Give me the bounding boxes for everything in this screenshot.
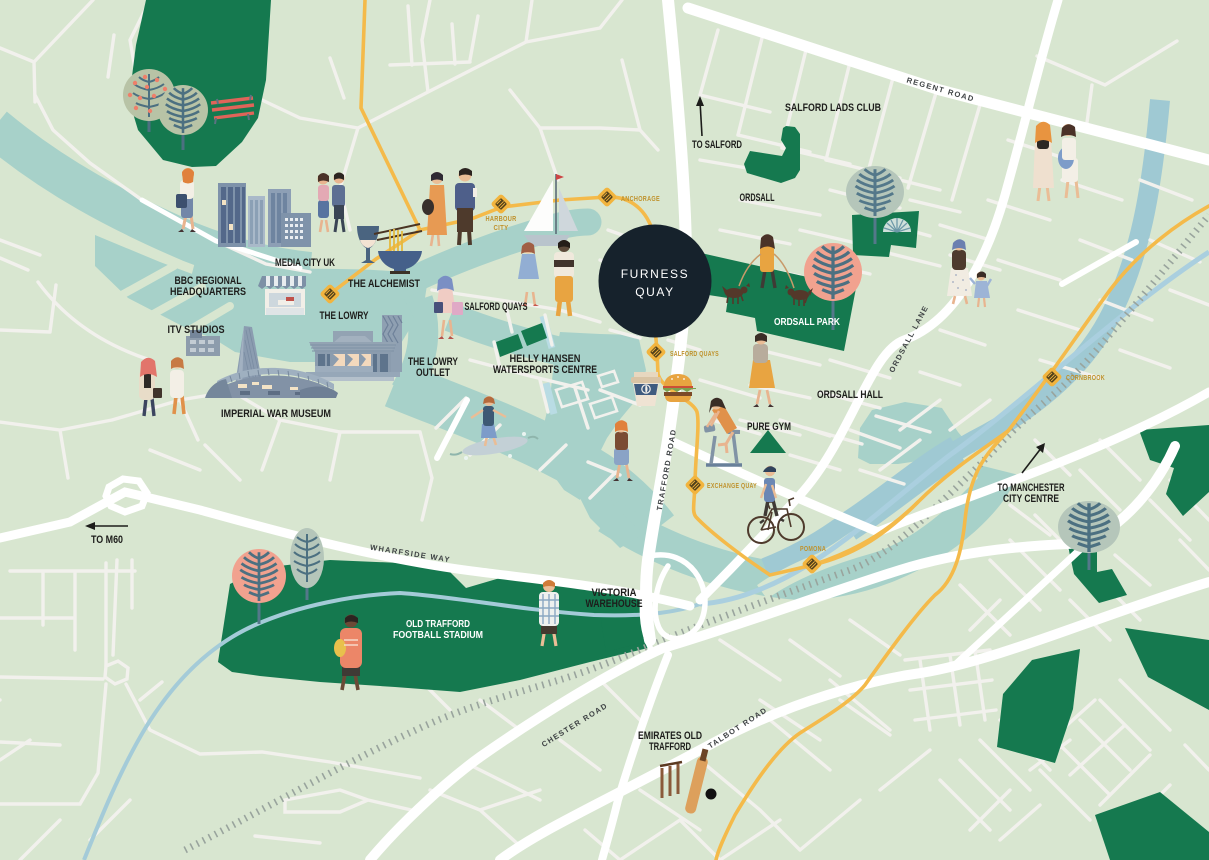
svg-text:TO M60: TO M60 [91, 534, 123, 546]
svg-text:HEADQUARTERS: HEADQUARTERS [170, 286, 246, 298]
svg-text:WATERSPORTS CENTRE: WATERSPORTS CENTRE [493, 364, 597, 376]
svg-text:CITY CENTRE: CITY CENTRE [1003, 493, 1059, 505]
svg-text:TRAFFORD: TRAFFORD [649, 741, 691, 753]
svg-text:OUTLET: OUTLET [416, 367, 450, 379]
svg-text:CORNBROOK: CORNBROOK [1066, 373, 1105, 382]
svg-text:QUAY: QUAY [635, 285, 675, 299]
svg-text:ITV STUDIOS: ITV STUDIOS [168, 324, 225, 336]
svg-text:POMONA: POMONA [800, 544, 826, 553]
svg-text:ORDSALL: ORDSALL [740, 192, 775, 204]
svg-text:MEDIA CITY UK: MEDIA CITY UK [275, 257, 335, 269]
svg-text:THE LOWRY: THE LOWRY [320, 310, 369, 322]
svg-text:IMPERIAL WAR MUSEUM: IMPERIAL WAR MUSEUM [221, 408, 331, 420]
svg-text:FURNESS: FURNESS [621, 267, 690, 281]
svg-text:PURE GYM: PURE GYM [747, 421, 791, 433]
svg-text:THE ALCHEMIST: THE ALCHEMIST [348, 278, 420, 290]
svg-text:ORDSALL HALL: ORDSALL HALL [817, 389, 883, 401]
svg-text:WAREHOUSE: WAREHOUSE [586, 598, 643, 610]
svg-text:HARBOUR: HARBOUR [486, 214, 517, 223]
svg-text:FOOTBALL STADIUM: FOOTBALL STADIUM [393, 629, 483, 641]
svg-text:CITY: CITY [494, 223, 509, 232]
svg-text:ORDSALL PARK: ORDSALL PARK [774, 316, 840, 328]
svg-text:SALFORD LADS CLUB: SALFORD LADS CLUB [785, 102, 881, 114]
svg-text:SALFORD QUAYS: SALFORD QUAYS [670, 349, 719, 358]
svg-text:EXCHANGE QUAY: EXCHANGE QUAY [707, 481, 757, 490]
svg-text:SALFORD QUAYS: SALFORD QUAYS [465, 301, 528, 313]
svg-text:ANCHORAGE: ANCHORAGE [621, 194, 660, 203]
svg-text:TO SALFORD: TO SALFORD [692, 139, 742, 151]
